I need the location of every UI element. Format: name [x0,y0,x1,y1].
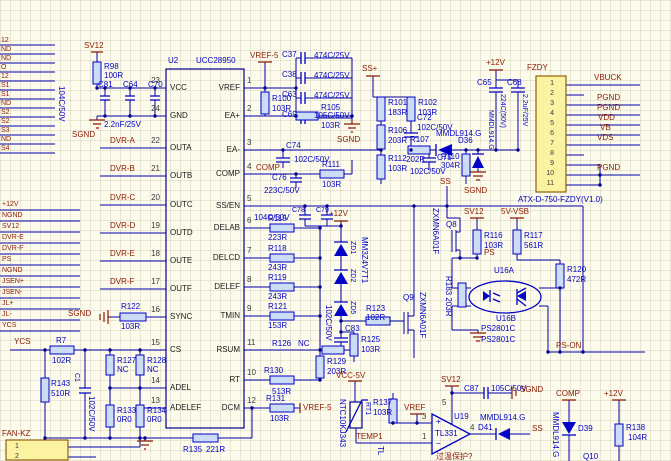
c76-ref: C76 [272,173,287,182]
r135-body[interactable] [193,434,218,442]
bus-label: ND [1,100,11,108]
net-label-sgnd: SGND [68,309,91,318]
net-label-vb: VB [600,123,611,132]
net-label-dvr-d: DVR-D [110,221,135,230]
u2-pin-number: 1 [247,76,251,85]
r115-body[interactable] [270,224,294,232]
r135-ref: R135 [183,445,202,454]
u2-pin-number: 15 [130,338,160,347]
bus-label: S2 [1,109,10,117]
r127-ref: R127 [117,356,136,365]
net-label: YCS [2,322,16,330]
fan-pin-number: 1 [15,443,19,451]
r120-body[interactable] [556,264,564,288]
u16-led-triangle [483,291,490,301]
net-label: JSEN- [2,289,22,297]
u2-pin-name: DCM [176,403,240,412]
r183-body[interactable] [458,283,466,307]
r127-body[interactable] [106,355,114,375]
net-label-fzdy: FZDY [527,63,548,72]
net-label-dvr-e: DVR-E [110,249,135,258]
zd2-triangle[interactable] [334,272,348,284]
net-label-vdd: VDD [598,113,615,122]
fzdy-pin: 3 [540,100,554,108]
r130-ref: R130 [264,366,283,375]
c72-ref: C72 [417,113,432,122]
r107-val: 202R [406,155,425,164]
c79-ref: C79 [316,207,329,215]
u19-pin3: 3 [422,412,426,421]
net-label-vds: VDS [597,133,613,142]
net-label-sgnd: SGND [72,130,95,139]
r116-body[interactable] [473,230,481,254]
r134-val: 0R0 [147,415,162,424]
u19-pin4: 4 [470,423,474,432]
net-label-5v-vsb: 5V-VSB [501,207,529,216]
fzdy-pin: 7 [540,140,554,148]
u2-pin-number: 9 [247,304,251,313]
r106-ref: R106 [388,126,407,135]
net-label-dvr-f: DVR-F [110,277,134,286]
c1-val: 102C/50V [87,396,96,432]
r122-ref: R122 [121,302,140,311]
net-label-dvr-b: DVR-B [110,164,135,173]
rt1-body[interactable] [350,402,362,428]
r98-val: 100R [104,71,123,80]
cut-text-tl: TL [376,446,385,455]
r137-val: 103R [373,408,392,417]
d37-triangle[interactable] [472,156,484,168]
r112-body[interactable] [377,155,385,179]
u2-pin-number: 13 [130,396,160,405]
r143-body[interactable] [41,378,49,402]
r106-body[interactable] [377,125,385,149]
bus-label: 12 [1,73,9,81]
u2-pin-name: DELCD [176,253,240,262]
u2-pin-name: DELAB [176,223,240,232]
q8-ref: Q8 [446,220,457,229]
d36-ref: D36 [458,136,473,145]
net-label-comp: COMP [556,389,580,398]
caps-left-val: 104C/50V [57,86,66,122]
r111-body[interactable] [320,170,344,178]
r121-val: 153R [268,321,287,330]
net-label: DVR-E [2,234,24,242]
r112-ref: R112 [388,154,407,163]
zener-part: MM3Z4V7T1 [360,237,369,283]
net-label: NGND [2,212,23,220]
net-label: JSEN+ [2,278,24,286]
r133-ref: R133 [117,406,136,415]
r126-ref: R126 [272,339,291,348]
c38-val: 474C/25V [314,71,350,80]
note-text: 过温保护? [436,452,472,461]
net-label: +12V [2,201,19,209]
r117-val: 561R [524,241,543,250]
q8-part: ZXMN6A01F [431,208,440,254]
r123-val: 102R [366,313,385,322]
u2-ref: U2 [168,56,178,65]
r134-body[interactable] [136,405,144,427]
bus-label: S1 [1,82,10,90]
c65-ref: C65 [477,78,492,87]
r111-ref: R111 [322,160,340,169]
u16-led-bar-arrows [490,290,500,302]
fzdy-pin: 8 [540,150,554,158]
rt1-ref: RT1 [363,402,371,415]
q9-part: ZXMN6A01F [418,292,427,338]
u2-pin-number: 24 [130,104,160,113]
c37-val: 474C/25V [314,51,350,60]
r102-ref: R102 [418,98,437,107]
bus-label: ND [1,136,11,144]
r100-body[interactable] [261,92,269,114]
u2-pin-name: RSUM [176,345,240,354]
net-label-vbuck: VBUCK [594,73,622,82]
net-label-vref: VREF [404,403,425,412]
net-label-vref-5: VREF-5 [303,403,331,412]
d39-part: MMDL914.G [551,412,560,457]
r101-val: 183R [388,108,407,117]
u16-outline[interactable] [469,281,541,313]
fzdy-pin: 5 [540,120,554,128]
r118-body[interactable] [270,254,294,262]
u2-pin-number: 4 [247,162,251,171]
c83-val: 102C/50V [324,305,333,341]
net-label-dvr-a: DVR-A [110,136,135,145]
r143-val: 510R [51,389,70,398]
net-label-sgnd: SGND [464,186,487,195]
caps-left-val2: 2.2nF/25V [104,120,141,129]
u2-pin-number: 6 [247,216,251,225]
r120-ref: R120 [567,265,586,274]
r105-val: 103R [321,121,340,130]
d41-part: MMDL914.G [480,413,525,422]
u2-pin-number: 10 [247,368,256,377]
r128-ref: R128 [147,356,166,365]
net-label-comp: COMP [256,163,280,172]
u2-pin-number: 12 [247,396,256,405]
fzdy-pin: 2 [540,90,554,98]
c69-ref: C69 [282,110,297,119]
net-label-fan-kz: FAN-KZ [2,429,30,438]
net-label-temp1: TEMP1 [356,432,383,441]
net-label: DVR-F [2,245,23,253]
u19-ref: U19 [454,412,469,421]
c1-ref: C1 [72,373,80,382]
zd1-ref: ZD1 [348,241,356,254]
u2-pin-number: 3 [247,138,251,147]
c81-ref: C81 [98,80,113,89]
fzdy-pin: 10 [540,170,554,178]
r115-ref: R115 [268,214,287,223]
bus-label: 12 [1,37,9,45]
r7-val: 102R [52,356,71,365]
bus-label: ND [1,55,11,63]
r110-ref: R110 [441,152,460,161]
fzdy-pin: 4 [540,110,554,118]
u2-part: UCC28950 [196,56,236,65]
r119-body[interactable] [270,283,294,291]
fan-pin-number: 2 [15,453,19,461]
fzdy-pin: 11 [540,180,554,188]
r105-ref: R105 [321,103,340,112]
r101-ref: R101 [388,98,407,107]
rt1-part: NTC10KJ343 [338,399,347,447]
u2-pin-name: RT [176,375,240,384]
r125-body[interactable] [350,334,358,356]
r119-val: 243R [268,292,287,301]
r129-ref: R129 [327,357,346,366]
r130-body[interactable] [270,376,294,384]
net-label-ps: PS [484,248,495,257]
zd5-ref: ZD5 [348,301,356,314]
c65-val: 224C(50V) [498,94,506,128]
u19-part: TL331 [435,429,458,438]
schematic-canvas[interactable]: 12 ND ND O 12 S1 S1 ND S2 S2 S3 ND S4 +1… [0,0,671,461]
r118-ref: R118 [268,244,287,253]
r117-ref: R117 [524,231,543,240]
r117-body[interactable] [513,230,521,254]
r115-val: 223R [268,233,287,242]
r120-val: 472R [567,275,586,284]
net-label: JL- [2,311,12,319]
u2-pin-number: 23 [130,76,160,85]
net-label-vref-5: VREF-5 [250,51,278,60]
fzdy-pin: 1 [540,80,554,88]
net-label-sv12: SV12 [84,41,104,50]
r131-body[interactable] [270,404,294,412]
net-label-sv12: SV12 [441,375,461,384]
r98-ref: R98 [104,62,119,71]
r119-ref: R119 [268,273,287,282]
r118-val: 243R [268,263,287,272]
bus-label: S2 [1,118,10,126]
r125-ref: R125 [361,335,380,344]
r138-body[interactable] [615,424,623,446]
q10-ref: Q10 [583,452,598,461]
c68-val: 2.2uF/25V [520,94,528,126]
r125-val: 103R [361,345,380,354]
r126-val: NC [298,339,310,348]
bus-label: O [1,64,6,72]
bus-label: S4 [1,145,10,153]
r122-val: 103R [121,322,140,331]
r129-body[interactable] [316,356,324,378]
u2-pin-name: EA- [176,145,240,154]
net-label-12v: +12V [604,389,623,398]
r126-body[interactable] [322,346,344,354]
r7-ref: R7 [56,336,66,345]
net-label: PS [2,256,11,264]
r138-val: 104R [628,433,647,442]
r112-val: 103R [388,164,407,173]
net-label-12v: +12V [486,58,505,67]
bus-label: S3 [1,127,10,135]
u2-pin-number: 14 [130,376,160,385]
r107-ref: R107 [410,135,429,144]
zd5-triangle[interactable] [334,304,348,316]
net-label-pgnd: PGND [597,103,620,112]
net-label-ss: SS [532,424,543,433]
r111-val: 103R [322,180,341,189]
r101-body[interactable] [377,97,385,121]
u2-pin-number: 2 [247,104,251,113]
u2-pin-name: ADEL [170,383,191,392]
net-label-vcc-5v: VCC-5V [336,371,365,380]
r110-body[interactable] [462,154,470,176]
u2-pin-number: 17 [130,277,160,286]
c68-ref: C68 [507,78,522,87]
net-label-sgnd: SGND [520,385,543,394]
c63-ref: C63 [282,90,297,99]
r138-ref: R138 [626,423,645,432]
r131-ref: R131 [266,394,285,403]
u2-pin-name: SS/EN [176,201,240,210]
bus-label: ND [1,46,11,54]
net-label-ycs: YCS [14,337,30,346]
r143-ref: R143 [51,379,70,388]
r121-body[interactable] [270,312,294,320]
u2-pin-number: 5 [247,194,251,203]
u16-part2: PS2801C [481,335,515,344]
zd2-ref: ZD2 [348,269,356,282]
r110-val: 304R [441,161,460,170]
c87-ref: C87 [464,384,479,393]
r133-val: 0R0 [117,415,132,424]
net-label-pgnd: PGND [597,163,620,172]
r122-body[interactable] [120,313,146,321]
c69-val: 105C/50V [314,111,350,120]
c78-ref: C78 [292,207,305,215]
u19-pin5: 5 [442,398,446,407]
u16a-ref: U16A [494,266,514,275]
r123-ref: R123 [366,304,385,313]
net-label-ss: SS [440,177,451,186]
d37-part: MMDL914.G [486,110,494,150]
u19-plus: + [436,417,441,426]
c76-val: 223C/50V [264,186,300,195]
c74-ref: C74 [286,141,301,150]
r121-ref: R121 [268,302,287,311]
r135-val: 221R [206,445,225,454]
bus-label: S1 [1,91,10,99]
r133-body[interactable] [106,405,114,427]
fzdy-part: ATX-D-750-FZDY(V1.0) [518,195,603,204]
net-label-12v: +12V [329,209,348,218]
r127-val: NC [117,365,129,374]
net-label-sv12: SV12 [464,207,484,216]
u19-pin1: 1 [422,432,426,441]
u2-pin-name: TMIN [176,311,240,320]
net-label: SV12 [2,223,19,231]
net-label-dvr-c: DVR-C [110,193,135,202]
net-label-sgnd: SGND [337,135,360,144]
r106-val: 203R [388,136,407,145]
r134-ref: R134 [147,406,166,415]
u2-pin-name: EA+ [176,111,240,120]
optocoupler-u16[interactable] [469,281,541,313]
u2-pin-name: VREF [176,83,240,92]
net-label-ps-on: PS-ON [556,341,581,350]
net-label: NGND [2,267,23,275]
r128-val: NC [147,365,159,374]
r131-val: 103R [270,414,289,423]
fzdy-pin: 9 [540,160,554,168]
r116-ref: R116 [484,231,503,240]
net-label-ss-plus: SS+ [362,64,377,73]
r128-body[interactable] [136,355,144,375]
c83-ref: C83 [345,324,360,333]
d41-ref: D41 [478,423,493,432]
c37-ref: C37 [282,50,297,59]
u2-pin-number: 8 [247,275,251,284]
d39-triangle[interactable] [562,422,576,434]
u2-pin-number: 7 [247,246,251,255]
fzdy-pin: 6 [540,130,554,138]
net-label-pgnd: PGND [597,93,620,102]
c38-ref: C38 [282,70,297,79]
zd1-triangle[interactable] [334,244,348,256]
u16b-ref: U16B [496,314,516,323]
u19-minus: − [436,439,441,448]
u16-part: PS2801C [481,324,515,333]
u2-pin-number: 11 [247,338,255,347]
q9-ref: Q9 [403,293,414,302]
r7-body[interactable] [50,346,74,354]
r102-body[interactable] [407,97,415,121]
r183-label: R183 203R [444,276,453,316]
u2-pin-name: DELEF [176,282,240,291]
r137-ref: R137 [373,398,392,407]
c63-val: 474C/25V [314,91,350,100]
u2-pin-name: COMP [176,169,240,178]
d39-ref: D39 [578,424,593,433]
d41-triangle[interactable] [498,428,510,440]
net-label: JL+ [2,300,13,308]
